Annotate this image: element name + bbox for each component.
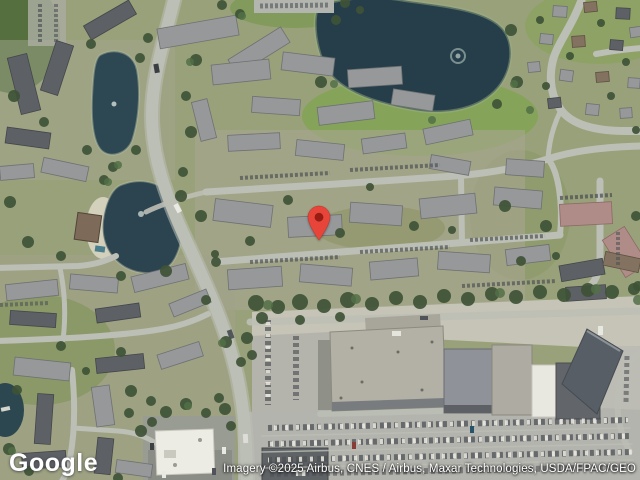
map-pin-icon — [307, 205, 331, 241]
google-logo[interactable]: Google — [9, 451, 98, 476]
pin-hole — [315, 213, 324, 222]
location-marker[interactable] — [307, 205, 331, 241]
pin-body — [308, 206, 330, 240]
map-viewport[interactable]: Google Imagery ©2025 Airbus, CNES / Airb… — [0, 0, 640, 480]
imagery-attribution: Imagery ©2025 Airbus, CNES / Airbus, Max… — [223, 463, 636, 476]
